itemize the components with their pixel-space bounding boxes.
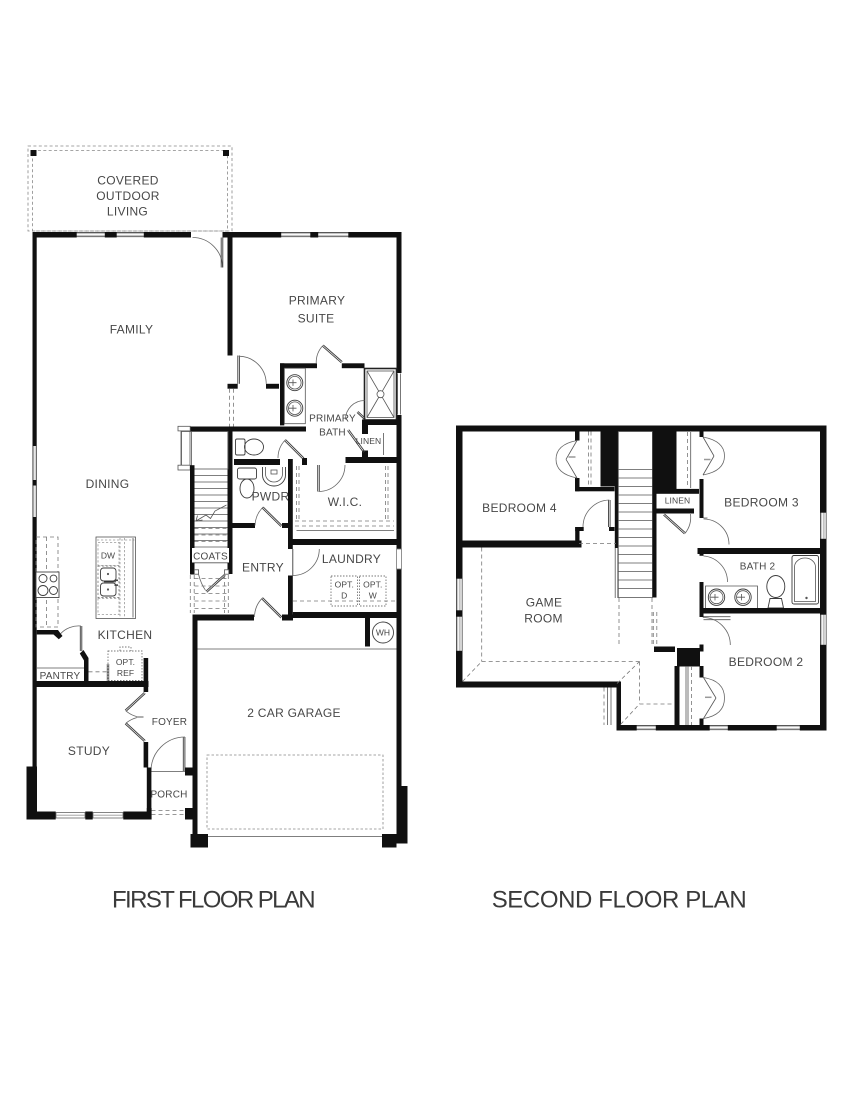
svg-text:SUITE: SUITE (298, 312, 335, 326)
svg-text:DW: DW (101, 551, 115, 561)
svg-text:LIVING: LIVING (107, 205, 148, 219)
svg-text:PANTRY: PANTRY (40, 671, 81, 682)
svg-text:OUTDOOR: OUTDOOR (96, 189, 159, 203)
svg-text:2 CAR GARAGE: 2 CAR GARAGE (247, 706, 341, 720)
svg-text:OPT.: OPT. (363, 580, 382, 590)
svg-text:COVERED: COVERED (97, 174, 158, 188)
svg-text:W.I.C.: W.I.C. (328, 495, 362, 509)
svg-text:D: D (341, 591, 347, 601)
svg-text:BATH 2: BATH 2 (740, 562, 776, 573)
svg-text:LAUNDRY: LAUNDRY (322, 552, 381, 566)
svg-text:FAMILY: FAMILY (110, 323, 154, 337)
svg-text:DINING: DINING (86, 477, 130, 491)
svg-text:PRIMARY: PRIMARY (289, 294, 346, 308)
svg-text:FIRST FLOOR PLAN: FIRST FLOOR PLAN (112, 887, 314, 914)
svg-text:BEDROOM 4: BEDROOM 4 (482, 501, 557, 515)
svg-text:REF: REF (117, 668, 134, 678)
svg-text:ROOM: ROOM (524, 612, 563, 626)
svg-text:PWDR: PWDR (252, 490, 290, 504)
svg-text:PORCH: PORCH (150, 790, 187, 801)
svg-text:FOYER: FOYER (152, 717, 187, 728)
svg-text:WH: WH (376, 628, 390, 638)
svg-text:BATH: BATH (319, 428, 346, 439)
svg-text:COATS: COATS (193, 552, 228, 563)
svg-text:OPT.: OPT. (116, 657, 135, 667)
svg-text:LINEN: LINEN (356, 436, 382, 446)
svg-text:BEDROOM 3: BEDROOM 3 (724, 496, 799, 510)
svg-text:PRIMARY: PRIMARY (309, 414, 356, 425)
svg-text:LINEN: LINEN (665, 496, 691, 506)
svg-text:KITCHEN: KITCHEN (98, 628, 153, 642)
svg-text:BEDROOM 2: BEDROOM 2 (729, 655, 804, 669)
svg-text:OPT.: OPT. (335, 580, 354, 590)
svg-text:ENTRY: ENTRY (242, 561, 284, 575)
svg-text:SECOND FLOOR PLAN: SECOND FLOOR PLAN (492, 887, 747, 914)
svg-text:W: W (369, 591, 377, 601)
svg-text:STUDY: STUDY (68, 744, 110, 758)
svg-text:GAME: GAME (526, 596, 563, 610)
